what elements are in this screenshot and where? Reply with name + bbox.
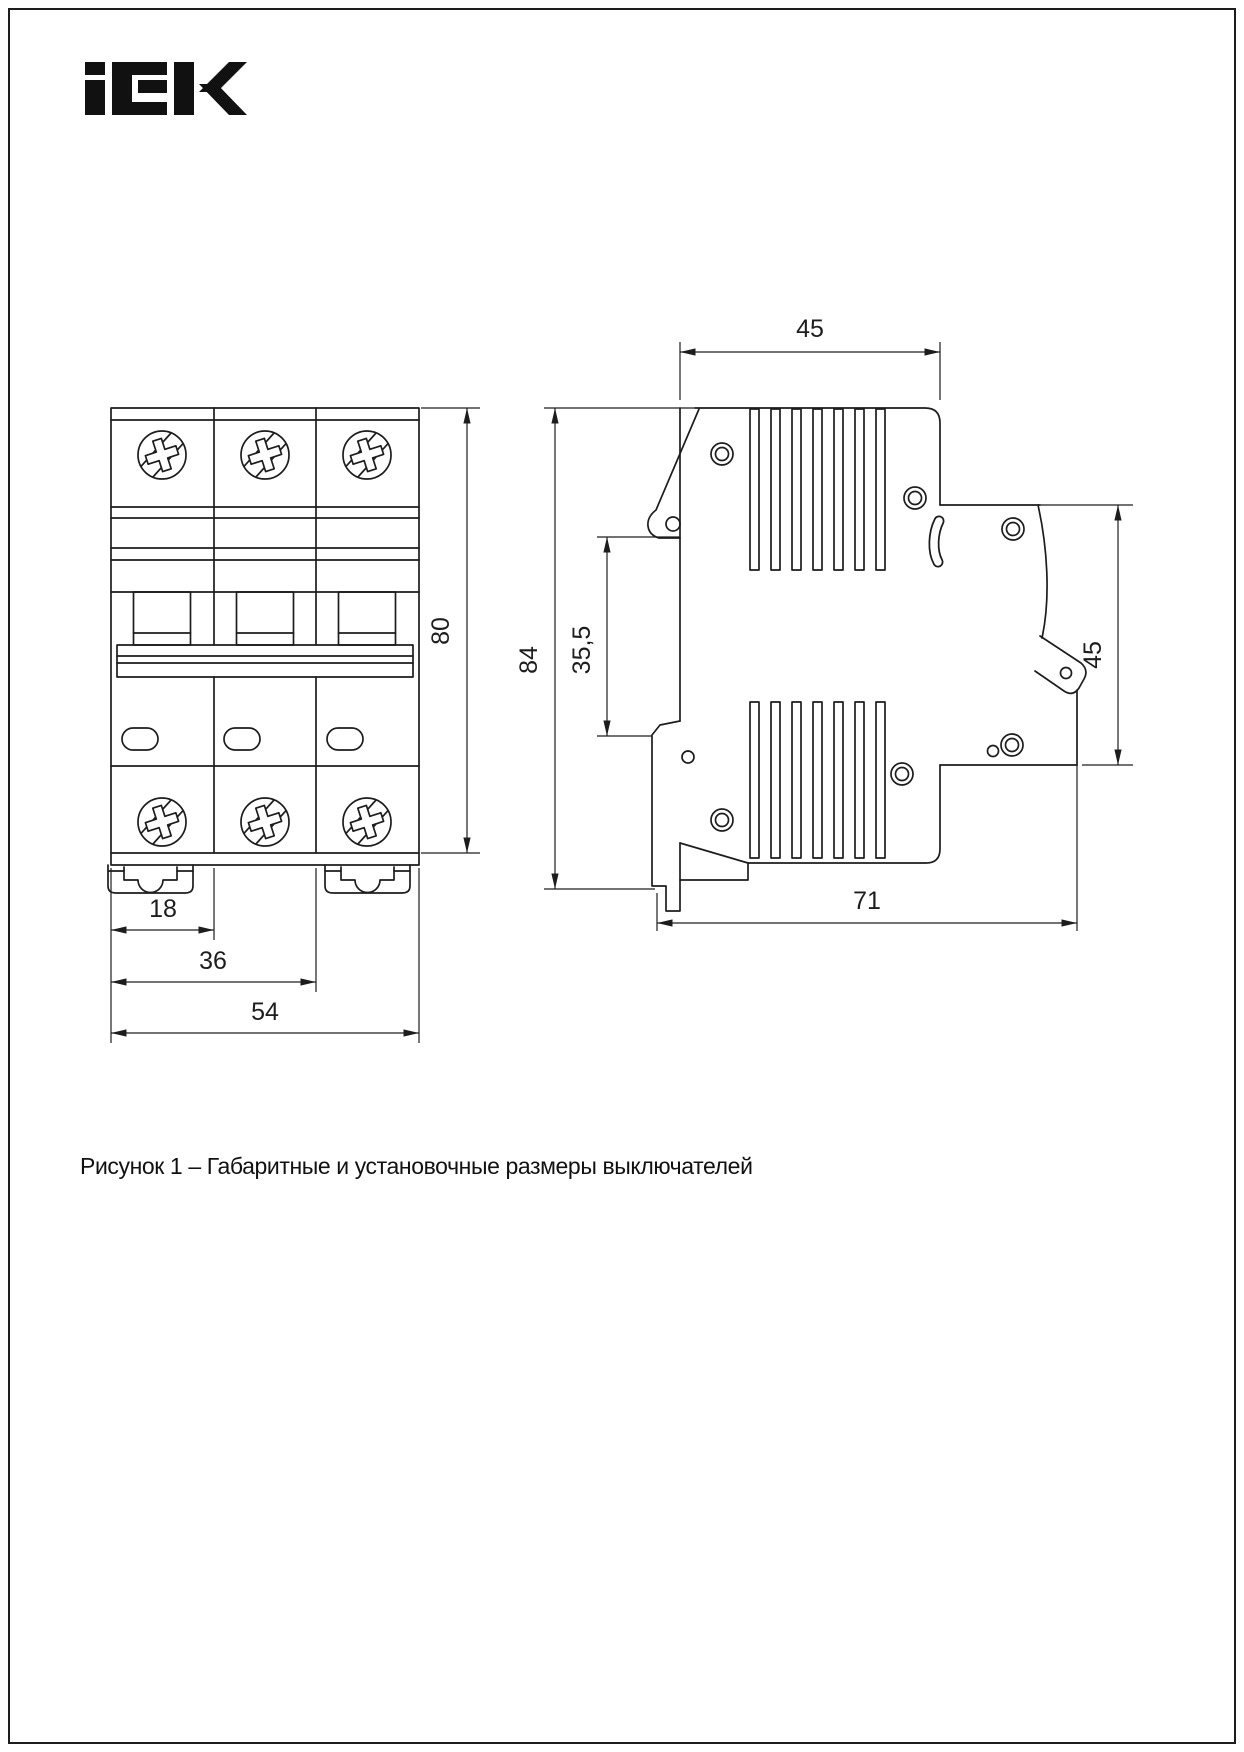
figure-caption: Рисунок 1 – Габаритные и установочные ра… — [80, 1153, 753, 1180]
dimension-side-right-45: 45 — [1040, 505, 1133, 765]
dimension-side-top-45: 45 — [680, 315, 940, 400]
front-toggle-levers — [134, 592, 396, 645]
front-toggle-crossbar — [117, 645, 413, 677]
dimension-label-45-right: 45 — [1079, 641, 1107, 669]
dimension-label-71: 71 — [853, 887, 881, 915]
dimension-label-54: 54 — [251, 998, 279, 1026]
dimensional-drawing: 80 18 36 54 — [0, 0, 1244, 1100]
dimension-label-84: 84 — [515, 646, 543, 674]
dimension-front-height-80: 80 — [421, 408, 480, 853]
dimension-label-36: 36 — [199, 947, 227, 975]
dimension-side-71: 71 — [657, 765, 1077, 931]
dimension-label-80: 80 — [427, 617, 455, 645]
front-terminal-screws-bottom — [138, 798, 391, 846]
front-terminal-screws-top — [138, 431, 391, 479]
dimension-label-45-top: 45 — [796, 315, 824, 343]
side-kidney-slot — [934, 521, 939, 562]
side-view — [648, 408, 1086, 911]
dimension-label-35-5: 35,5 — [568, 626, 596, 675]
latch-hole — [1061, 668, 1072, 679]
front-label-windows — [122, 728, 363, 750]
front-view — [108, 408, 419, 893]
page: 80 18 36 54 — [0, 0, 1244, 1752]
side-toggle-lever — [648, 409, 699, 538]
rail-release-pin — [682, 751, 694, 763]
side-body-outline — [652, 408, 1086, 911]
front-din-clips — [108, 865, 410, 893]
lever-pivot-pin — [666, 517, 680, 531]
dimension-side-35-5: 35,5 — [568, 537, 680, 736]
side-vent-slots-lower — [750, 702, 885, 858]
dimension-label-18: 18 — [149, 895, 177, 923]
dimension-front-widths: 18 36 54 — [111, 868, 419, 1043]
side-vent-slots-upper — [750, 409, 885, 570]
